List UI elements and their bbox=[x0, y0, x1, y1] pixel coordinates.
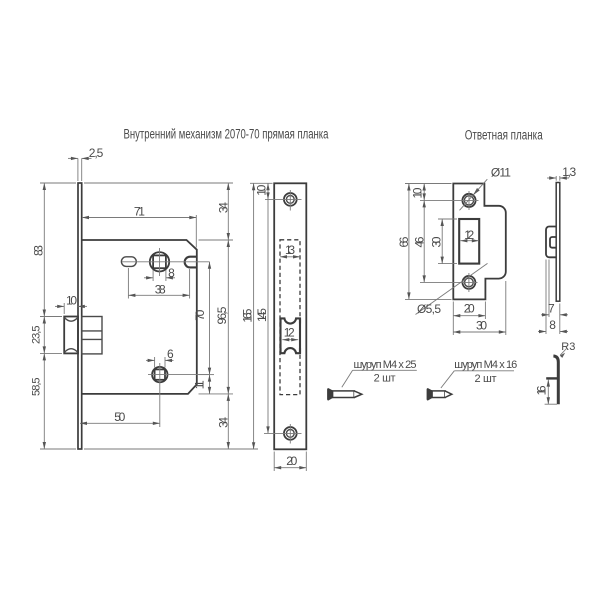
svg-text:6: 6 bbox=[167, 347, 174, 361]
svg-text:Ø5,5: Ø5,5 bbox=[417, 302, 441, 316]
svg-text:145: 145 bbox=[255, 308, 269, 322]
svg-text:70: 70 bbox=[193, 309, 207, 320]
svg-text:11: 11 bbox=[192, 380, 206, 389]
svg-text:20: 20 bbox=[286, 454, 297, 468]
svg-text:30: 30 bbox=[429, 236, 443, 247]
svg-text:34: 34 bbox=[216, 417, 230, 428]
svg-text:2,5: 2,5 bbox=[89, 146, 104, 160]
svg-text:23,5: 23,5 bbox=[31, 326, 43, 345]
svg-text:8: 8 bbox=[168, 266, 175, 280]
svg-text:10: 10 bbox=[411, 187, 425, 198]
svg-text:7: 7 bbox=[548, 301, 555, 315]
svg-text:12: 12 bbox=[464, 228, 474, 242]
svg-text:38: 38 bbox=[155, 282, 166, 296]
svg-text:1,3: 1,3 bbox=[562, 165, 576, 179]
svg-text:2 шт: 2 шт bbox=[374, 372, 396, 384]
svg-text:71: 71 bbox=[134, 205, 145, 219]
svg-text:34: 34 bbox=[216, 202, 230, 213]
svg-text:шуруп М4 х 16: шуруп М4 х 16 bbox=[454, 359, 517, 371]
svg-text:20: 20 bbox=[464, 302, 475, 316]
svg-text:66: 66 bbox=[397, 236, 411, 247]
svg-text:16: 16 bbox=[535, 385, 549, 395]
svg-text:30: 30 bbox=[476, 318, 487, 332]
svg-text:10: 10 bbox=[254, 184, 268, 195]
svg-text:2 шт: 2 шт bbox=[475, 373, 497, 385]
svg-text:8: 8 bbox=[549, 318, 556, 332]
svg-text:96,5: 96,5 bbox=[215, 306, 229, 324]
svg-text:46: 46 bbox=[413, 236, 427, 247]
svg-text:Ответная планка: Ответная планка bbox=[465, 128, 543, 144]
svg-text:50: 50 bbox=[114, 410, 125, 424]
svg-text:58,5: 58,5 bbox=[31, 377, 43, 396]
svg-text:шуруп М4 х 25: шуруп М4 х 25 bbox=[354, 359, 417, 371]
svg-text:165: 165 bbox=[240, 308, 254, 322]
svg-text:R3: R3 bbox=[561, 341, 575, 353]
svg-text:10: 10 bbox=[66, 294, 77, 308]
svg-text:13: 13 bbox=[285, 243, 295, 257]
svg-text:Ø11: Ø11 bbox=[491, 165, 511, 179]
svg-text:Внутренний механизм 2070-70 пр: Внутренний механизм 2070-70 прямая планк… bbox=[124, 127, 329, 143]
svg-text:12: 12 bbox=[284, 325, 295, 339]
svg-text:83: 83 bbox=[32, 245, 46, 256]
